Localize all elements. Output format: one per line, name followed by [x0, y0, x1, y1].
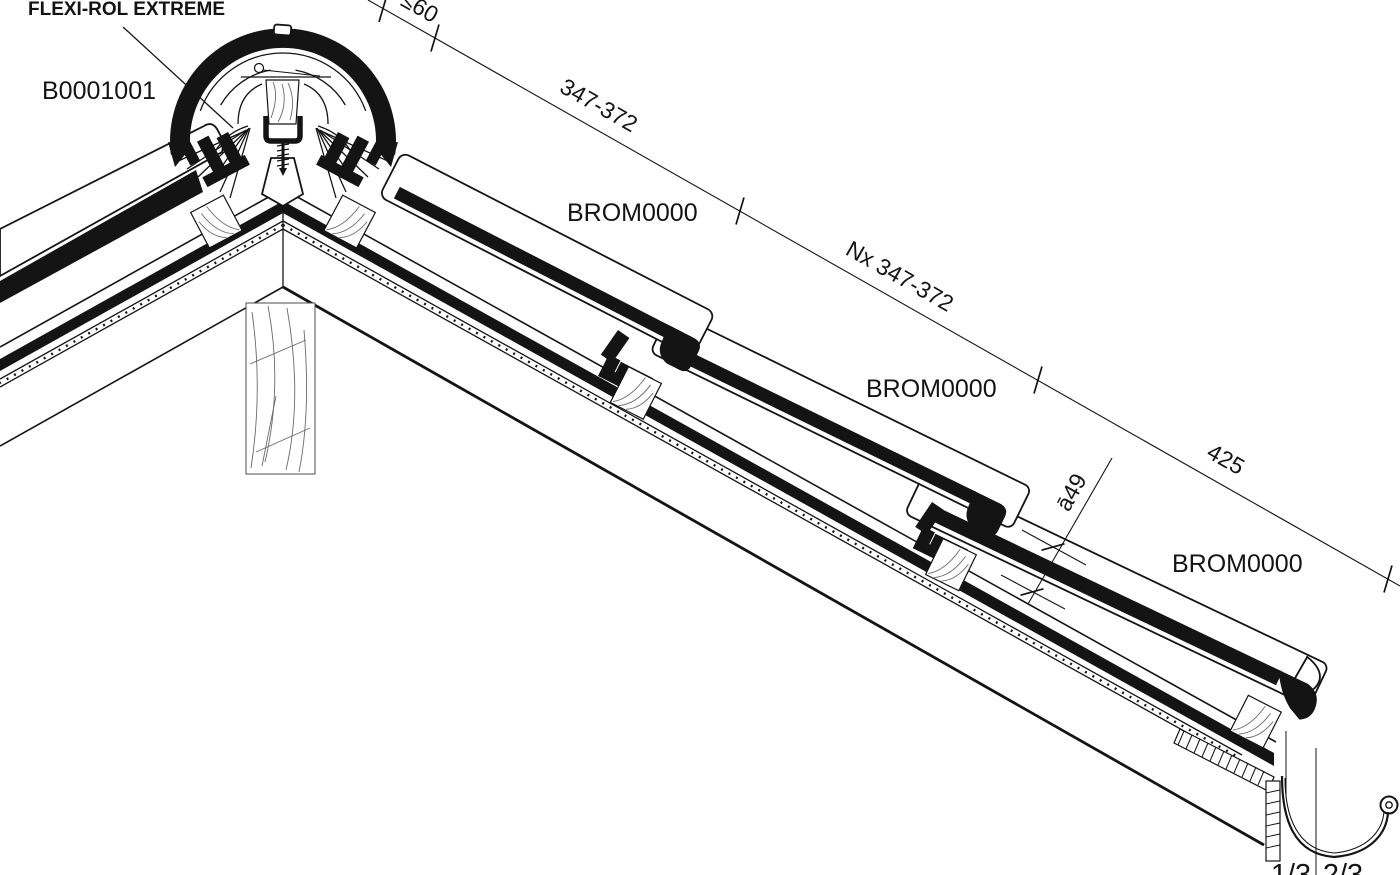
label-tile-1: BROM0000 [567, 199, 698, 227]
gutter-bead [1381, 797, 1398, 814]
dim-eave-tile: 425 [1203, 438, 1249, 480]
right-slope [283, 189, 1276, 845]
fraction-right: 2/3 [1323, 859, 1363, 875]
label-tile-3: BROM0000 [1172, 550, 1303, 578]
roof-section-svg: ≤60 347-372 Nx 347-372 425 ā49 FLEXI-ROL… [0, 0, 1400, 875]
dim-ridge-overlap: ≤60 [397, 0, 443, 28]
roof-tile-1 [371, 152, 717, 374]
roof-tile-2 [643, 311, 1031, 544]
roof-tile-3 [898, 472, 1335, 724]
fascia-board [1266, 781, 1280, 861]
ridge-cap-nub [274, 24, 292, 35]
label-ridge-code: B0001001 [42, 77, 156, 105]
label-tile-2: BROM0000 [866, 375, 997, 403]
label-flexi-rol: FLEXI-ROL EXTREME [28, 0, 225, 20]
ridge-board [246, 303, 315, 474]
dimension-chain: ≤60 347-372 Nx 347-372 425 [368, 0, 1400, 593]
fraction-left: 1/3 [1271, 859, 1311, 875]
dim-repeat-courses: Nx 347-372 [842, 235, 958, 316]
roof-detail-drawing: ≤60 347-372 Nx 347-372 425 ā49 FLEXI-ROL… [0, 0, 1400, 875]
dim-headlap: ā49 [1050, 469, 1091, 515]
dim-first-course: 347-372 [556, 73, 642, 137]
gutter [1282, 776, 1398, 857]
